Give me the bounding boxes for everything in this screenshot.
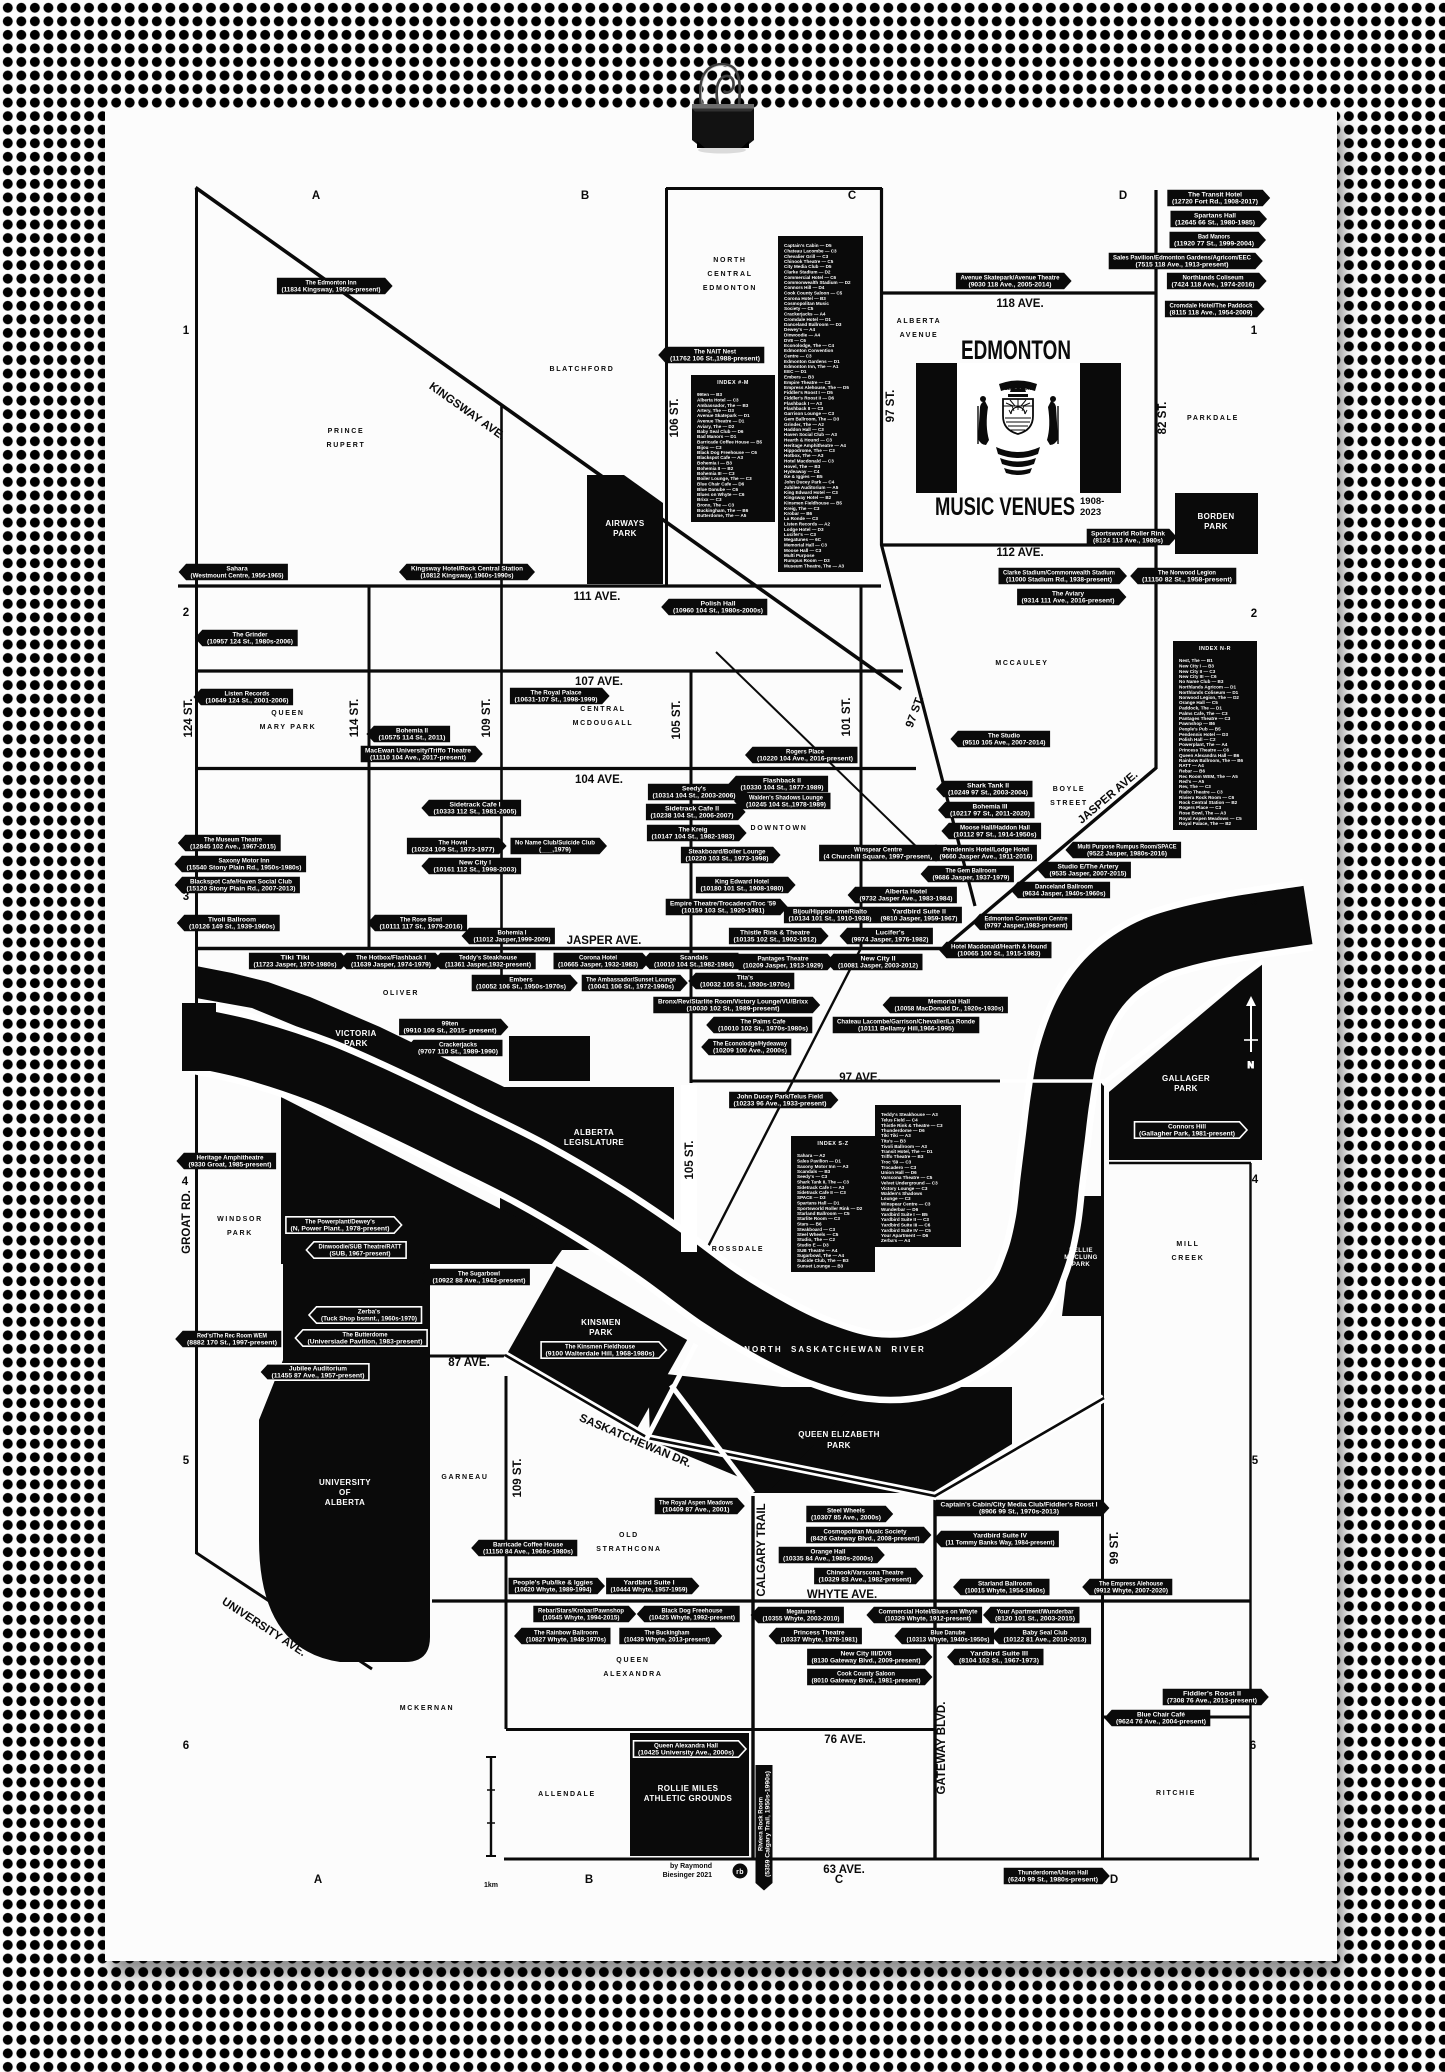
svg-text:A: A [314,1874,322,1886]
svg-text:The Ambassador/Sunset Lounge: The Ambassador/Sunset Lounge [586,977,676,984]
svg-text:2: 2 [1251,608,1257,620]
svg-text:The Buckingham: The Buckingham [645,1630,690,1637]
svg-text:(9974 Jasper, 1976-1982): (9974 Jasper, 1976-1982) [852,937,929,944]
svg-text:OLD: OLD [619,1532,639,1539]
svg-text:The Museum Theatre: The Museum Theatre [204,837,262,844]
svg-text:Studio, The — C2: Studio, The — C2 [797,1237,835,1242]
svg-text:101 ST.: 101 ST. [841,698,853,737]
svg-text:GARNEAU: GARNEAU [441,1474,488,1481]
svg-text:(Tuck Shop bsmnt., 1960s-1970): (Tuck Shop bsmnt., 1960s-1970) [321,1316,417,1323]
svg-text:Kinsmen Fieldhouse — B5: Kinsmen Fieldhouse — B5 [784,501,842,506]
svg-text:PARKDALE: PARKDALE [1187,415,1239,422]
svg-text:Brixx — C3: Brixx — C3 [697,497,722,502]
svg-text:(10439 Whyte, 2013-present): (10439 Whyte, 2013-present) [624,1637,710,1644]
svg-text:Seedy's — C3: Seedy's — C3 [797,1174,828,1179]
svg-text:Memorial Hall — C3: Memorial Hall — C3 [784,543,827,548]
svg-text:Society — C5: Society — C5 [784,306,814,311]
svg-text:105 ST.: 105 ST. [684,1141,696,1180]
svg-text:CREEK: CREEK [1171,1255,1204,1262]
svg-text:Nest, The — B1: Nest, The — B1 [1179,658,1213,663]
svg-text:(11000 Stadium Rd., 1938-prese: (11000 Stadium Rd., 1938-present) [1006,577,1112,584]
svg-text:JASPER AVE.: JASPER AVE. [1076,769,1141,827]
svg-text:NORTH: NORTH [713,257,746,264]
svg-text:(15120 Stony Plain Rd., 2007-2: (15120 Stony Plain Rd., 2007-2013) [187,886,296,893]
svg-text:Garrison Lounge — C3: Garrison Lounge — C3 [784,411,834,416]
svg-text:Scandals: Scandals [680,955,709,962]
svg-text:(11150 84 Ave., 1960s-1980s): (11150 84 Ave., 1960s-1980s) [483,1549,573,1556]
svg-text:INDEX #-M: INDEX #-M [717,380,749,386]
svg-text:Hotbox, The — A3: Hotbox, The — A3 [784,453,824,458]
svg-text:(7515 118 Ave., 1913-present): (7515 118 Ave., 1913-present) [1136,262,1229,269]
svg-text:2023: 2023 [1080,507,1101,518]
svg-text:(8010 Gateway Blvd., 1981-pres: (8010 Gateway Blvd., 1981-present) [812,1678,921,1685]
svg-text:Edmonton Convention Centre: Edmonton Convention Centre [985,916,1068,923]
svg-text:Commercial Hotel/Blues on Whyt: Commercial Hotel/Blues on Whyte [879,1609,978,1616]
svg-text:The Edmonton Inn: The Edmonton Inn [306,280,357,287]
svg-text:Captain's Cabin/City Media Clu: Captain's Cabin/City Media Club/Fiddler'… [941,1502,1098,1509]
svg-text:Dinwoodie/SUB Theatre/RATT: Dinwoodie/SUB Theatre/RATT [319,1244,402,1251]
svg-text:Paddock, The — D1: Paddock, The — D1 [1179,706,1222,711]
svg-text:Butterdome, The — A5: Butterdome, The — A5 [697,513,747,518]
svg-text:Centre — C3: Centre — C3 [784,354,812,359]
svg-text:New City III/DV8: New City III/DV8 [841,1651,892,1658]
svg-text:No Name Club/Suicide Club: No Name Club/Suicide Club [515,840,595,847]
svg-text:Kingsway Hotel/Rock Central St: Kingsway Hotel/Rock Central Station [411,566,523,573]
svg-text:Sidetrack Cafe II: Sidetrack Cafe II [665,806,719,813]
svg-text:Cook County Saloon — C5: Cook County Saloon — C5 [784,291,843,296]
svg-text:City Media Club — D5: City Media Club — D5 [784,264,832,269]
svg-text:(9660 Jasper Ave., 1911-2016): (9660 Jasper Ave., 1911-2016) [940,854,1033,861]
svg-text:4: 4 [1252,1174,1259,1186]
svg-text:KINGSWAY AVE.: KINGSWAY AVE. [427,381,507,443]
svg-text:The Royal Aspen Meadows: The Royal Aspen Meadows [659,1500,733,1507]
svg-text:(10575 114 St., 2011): (10575 114 St., 2011) [379,735,446,742]
svg-text:Museum Theatre, The — A3: Museum Theatre, The — A3 [784,564,845,569]
svg-text:Bohemia I — B3: Bohemia I — B3 [697,461,732,466]
svg-text:(10425 Whyte, 1992-present): (10425 Whyte, 1992-present) [649,1615,735,1622]
svg-text:Empire Theatre/Trocadero/Troc: Empire Theatre/Trocadero/Troc '59 [670,901,776,908]
svg-text:EDMONTON: EDMONTON [961,335,1071,365]
svg-text:Orange Hall — C5: Orange Hall — C5 [1179,700,1218,705]
svg-text:Pantages Theatre: Pantages Theatre [758,956,809,963]
svg-text:Spartans Hall — D1: Spartans Hall — D1 [797,1201,840,1206]
svg-text:KINSMEN: KINSMEN [581,1318,621,1327]
svg-text:Embers — B3: Embers — B3 [784,375,814,380]
svg-text:ROSSDALE: ROSSDALE [712,1246,765,1253]
svg-text:RITCHIE: RITCHIE [1156,1790,1196,1797]
svg-text:Connors Hill — D4: Connors Hill — D4 [784,285,825,290]
svg-text:112 AVE.: 112 AVE. [996,547,1043,559]
svg-text:(10313 Whyte, 1940s-1950s): (10313 Whyte, 1940s-1950s) [907,1637,990,1644]
svg-text:(9797 Jasper,1983-present): (9797 Jasper,1983-present) [985,923,1068,930]
svg-text:(10180 101 St., 1908-1980): (10180 101 St., 1908-1980) [701,886,784,893]
svg-text:PARK: PARK [1204,522,1228,531]
svg-text:INDEX S-Z: INDEX S-Z [817,1141,848,1147]
svg-text:The Econolodge/Hydeaway: The Econolodge/Hydeaway [713,1041,787,1048]
svg-text:Chateau Lacombe — C3: Chateau Lacombe — C3 [784,249,837,254]
svg-text:(12645 66 St., 1980-1985): (12645 66 St., 1980-1985) [1175,220,1255,227]
svg-text:(10444 Whyte, 1957-1959): (10444 Whyte, 1957-1959) [611,1587,688,1594]
svg-text:ALEXANDRA: ALEXANDRA [603,1671,662,1678]
svg-text:Flashback II: Flashback II [763,778,801,785]
svg-text:Megatunes — 6C: Megatunes — 6C [784,537,822,542]
svg-text:118 AVE.: 118 AVE. [996,298,1043,310]
svg-text:Memorial Hall: Memorial Hall [928,999,970,1006]
svg-text:111 AVE.: 111 AVE. [574,591,621,603]
svg-text:NORTH SASKATCHEWAN RIVER: NORTH SASKATCHEWAN RIVER [744,1345,926,1354]
svg-text:Red's/The Rec Room WEM: Red's/The Rec Room WEM [197,1333,267,1340]
svg-text:Lounge — C3: Lounge — C3 [881,1196,911,1201]
svg-text:Bronx/Rev/Starlite Room/Victor: Bronx/Rev/Starlite Room/Victory Lounge/V… [658,999,808,1006]
svg-text:(10058 MacDonald Dr., 1920s-19: (10058 MacDonald Dr., 1920s-1930s) [895,1006,1004,1013]
svg-text:(10015 Whyte, 1954-1960s): (10015 Whyte, 1954-1960s) [965,1588,1045,1595]
svg-text:AVENUE: AVENUE [900,332,939,339]
svg-text:Corona Hotel: Corona Hotel [579,955,617,962]
svg-text:Lucifer's: Lucifer's [876,930,905,937]
svg-text:(10827 Whyte, 1948-1970s): (10827 Whyte, 1948-1970s) [526,1637,606,1644]
svg-text:(10812 Kingsway, 1960s-1990s): (10812 Kingsway, 1960s-1990s) [421,573,514,580]
svg-text:Northlands Agricom — D1: Northlands Agricom — D1 [1179,685,1236,690]
svg-text:EDMONTON: EDMONTON [703,285,757,292]
svg-text:The Butterdome: The Butterdome [343,1332,388,1339]
svg-text:People's Pub/Ike & Iggies: People's Pub/Ike & Iggies [513,1580,593,1587]
svg-text:Winspear Centre: Winspear Centre [854,847,902,854]
svg-text:QUEEN ELIZABETH: QUEEN ELIZABETH [798,1430,880,1439]
svg-text:Studio E/The Artery: Studio E/The Artery [1058,864,1119,871]
svg-text:Connors Hill: Connors Hill [1168,1124,1206,1131]
svg-text:(8426 Gateway Blvd., 2008-pres: (8426 Gateway Blvd., 2008-present) [811,1536,920,1543]
svg-text:The Royal Palace: The Royal Palace [531,690,582,697]
svg-text:The Hovel: The Hovel [439,840,468,847]
svg-text:Yardbird Suite IV: Yardbird Suite IV [973,1533,1028,1540]
svg-text:Rogers Place: Rogers Place [786,749,824,756]
svg-text:Heritage Amphitheatre: Heritage Amphitheatre [197,1155,264,1162]
svg-text:Barricade Coffee House — B5: Barricade Coffee House — B5 [697,440,763,445]
svg-text:(10238 104 St., 2006-2007): (10238 104 St., 2006-2007) [651,813,734,820]
svg-text:QUEEN: QUEEN [616,1657,649,1664]
svg-text:(10409 87 Ave., 2001): (10409 87 Ave., 2001) [663,1507,730,1514]
svg-text:(8906 99 St., 1970s-2013): (8906 99 St., 1970s-2013) [979,1509,1059,1516]
svg-text:ROLLIE MILES: ROLLIE MILES [658,1784,719,1793]
svg-text:B: B [581,190,589,202]
svg-text:Moose Hall/Haddon Hall: Moose Hall/Haddon Hall [960,825,1030,832]
svg-text:The Grinder: The Grinder [233,632,268,639]
svg-text:Powerplant, The — A4: Powerplant, The — A4 [1179,742,1228,747]
svg-text:Sales Pavilion/Edmonton Garden: Sales Pavilion/Edmonton Gardens/Agricom/… [1113,255,1251,262]
svg-text:PARK: PARK [344,1039,368,1048]
svg-text:97 AVE.: 97 AVE. [839,1072,881,1084]
svg-text:Shark Tank II: Shark Tank II [967,783,1009,790]
svg-text:Barricade Coffee House: Barricade Coffee House [493,1542,563,1549]
svg-text:King Edward Hotel: King Edward Hotel [715,879,769,886]
svg-text:CALGARY TRAIL: CALGARY TRAIL [756,1503,768,1596]
svg-text:Chinook/Varscona Theatre: Chinook/Varscona Theatre [827,1570,904,1577]
svg-text:(9100 Walterdale Hill, 1968-19: (9100 Walterdale Hill, 1968-1980s) [546,1351,655,1358]
svg-text:107 AVE.: 107 AVE. [575,676,623,688]
svg-text:Blue Chair Cafe — D6: Blue Chair Cafe — D6 [697,482,745,487]
svg-text:(10209 Jasper, 1913-1929): (10209 Jasper, 1913-1929) [743,963,823,970]
svg-text:QUEEN: QUEEN [271,710,304,717]
svg-text:New City II: New City II [861,956,896,963]
svg-text:The Powerplant/Dewey's: The Powerplant/Dewey's [305,1219,375,1226]
svg-text:(10030 102 St., 1989-present): (10030 102 St., 1989-present) [687,1006,780,1013]
svg-text:(5359 Calgary Trail, 1950s-199: (5359 Calgary Trail, 1950s-1990s) [765,1771,772,1877]
svg-text:C: C [848,190,856,202]
svg-text:EEC — D1: EEC — D1 [784,369,807,374]
svg-text:Tita's: Tita's [737,975,754,982]
svg-text:Teddy's Steakhouse: Teddy's Steakhouse [459,955,517,962]
svg-text:by Raymond: by Raymond [670,1863,712,1870]
svg-text:(10111 Bellamy Hill,1966-1995): (10111 Bellamy Hill,1966-1995) [858,1026,954,1033]
svg-text:MCCLUNG: MCCLUNG [1064,1255,1097,1261]
svg-text:Danceland Ballroom: Danceland Ballroom [1035,884,1093,891]
svg-text:(10220 104 Ave., 2016-present): (10220 104 Ave., 2016-present) [757,756,853,763]
svg-text:Multi Purpose Rumpus Room/SPAC: Multi Purpose Rumpus Room/SPACE [1078,844,1178,851]
svg-text:(10010 102 St., 1970s-1980s): (10010 102 St., 1970s-1980s) [718,1026,808,1033]
svg-text:Sahara — A2: Sahara — A2 [797,1153,826,1158]
svg-text:Bronx, The — C3: Bronx, The — C3 [697,503,734,508]
svg-text:(10217 97 St., 2011-2020): (10217 97 St., 2011-2020) [950,811,1030,818]
svg-text:(10337 Whyte, 1978-1981): (10337 Whyte, 1978-1981) [781,1637,858,1644]
svg-text:Hotel Macdonald — C3: Hotel Macdonald — C3 [784,459,834,464]
svg-text:BORDEN: BORDEN [1197,512,1234,521]
svg-text:(10333 112 St., 1981-2005): (10333 112 St., 1981-2005) [434,809,517,816]
svg-text:The Sugarbowl: The Sugarbowl [458,1271,500,1278]
svg-text:Haven Social Club — A3: Haven Social Club — A3 [784,432,837,437]
svg-text:Pawnshop — B6: Pawnshop — B6 [1179,721,1215,726]
svg-text:Steel Wheels: Steel Wheels [827,1508,865,1515]
svg-text:BOYLE: BOYLE [1053,786,1086,793]
svg-text:(Gallagher Park, 1981-present): (Gallagher Park, 1981-present) [1139,1131,1235,1138]
svg-text:109 ST.: 109 ST. [481,699,493,738]
svg-text:Alberta Hotel: Alberta Hotel [885,889,927,896]
svg-text:John Ducey Park — C4: John Ducey Park — C4 [784,480,835,485]
svg-text:STREET: STREET [1050,800,1088,807]
svg-text:(11110 104 Ave., 2017-present): (11110 104 Ave., 2017-present) [370,755,466,762]
svg-text:Ike & Iggies — B5: Ike & Iggies — B5 [784,474,823,479]
svg-text:The Empress Alehouse: The Empress Alehouse [1099,1581,1163,1588]
svg-text:(10233 96 Ave., 1933-present): (10233 96 Ave., 1933-present) [734,1101,827,1108]
svg-text:MUSIC VENUES: MUSIC VENUES [935,493,1075,521]
svg-text:INDEX N-R: INDEX N-R [1199,646,1231,652]
svg-text:Fiddler's Roost II — D6: Fiddler's Roost II — D6 [784,396,835,401]
svg-text:Telus Field — C4: Telus Field — C4 [881,1118,918,1123]
svg-text:105 ST.: 105 ST. [671,701,683,740]
svg-text:(10111 117 St., 1979-2016): (10111 117 St., 1979-2016) [380,924,463,931]
svg-text:(11361 Jasper,1932-present): (11361 Jasper,1932-present) [445,962,531,969]
svg-text:ALLENDALE: ALLENDALE [538,1791,596,1798]
svg-text:Boiler Lounge, The — C3: Boiler Lounge, The — C3 [697,476,752,481]
svg-text:People's Pub — B5: People's Pub — B5 [1179,727,1221,732]
svg-text:Royal Palace, The — B2: Royal Palace, The — B2 [1179,821,1232,826]
svg-text:Sales Pavilion — D1: Sales Pavilion — D1 [797,1159,841,1164]
svg-text:(11762 106 St.,1988-present): (11762 106 St.,1988-present) [670,356,760,363]
svg-text:DOWNTOWN: DOWNTOWN [750,825,807,832]
svg-text:(9510 105 Ave., 2007-2014): (9510 105 Ave., 2007-2014) [963,740,1046,747]
svg-text:MacEwan University/Triffo Thea: MacEwan University/Triffo Theatre [365,748,471,755]
svg-text:Pendennis Hotel/Lodge Hotel: Pendennis Hotel/Lodge Hotel [943,847,1029,854]
svg-text:WINDSOR: WINDSOR [217,1216,263,1223]
svg-text:MCDOUGALL: MCDOUGALL [573,720,634,727]
svg-text:63 AVE.: 63 AVE. [823,1864,865,1876]
svg-text:Tita's — B3: Tita's — B3 [881,1139,906,1144]
svg-text:Sahara: Sahara [226,566,248,573]
svg-text:(11 Tommy Banks Way, 1984-pres: (11 Tommy Banks Way, 1984-present) [946,1540,1055,1547]
svg-text:6: 6 [1250,1740,1256,1752]
svg-text:Chateau Lacombe/Garrison/Cheva: Chateau Lacombe/Garrison/Chevalier/La Ro… [837,1019,975,1026]
svg-text:Starlite Room — C3: Starlite Room — C3 [797,1216,840,1221]
svg-text:Blackspot Cafe/Haven Social Cl: Blackspot Cafe/Haven Social Club [190,879,292,886]
svg-text:Rev, The — C3: Rev, The — C3 [1179,784,1211,789]
svg-text:Crackerjacks — A4: Crackerjacks — A4 [784,312,826,317]
svg-text:(10112 97 St., 1914-1950s): (10112 97 St., 1914-1950s) [954,832,1037,839]
svg-text:Riviera Rock Room: Riviera Rock Room [758,1797,765,1851]
svg-text:114 ST.: 114 ST. [349,699,361,737]
svg-text:(7424 118 Ave., 1974-2016): (7424 118 Ave., 1974-2016) [1172,282,1255,289]
svg-text:(10159 103 St., 1920-1981): (10159 103 St., 1920-1981) [682,908,765,915]
svg-text:Blue Danube: Blue Danube [931,1630,966,1637]
svg-text:The Palms Cafe: The Palms Cafe [741,1019,786,1026]
svg-text:(10209 100 Ave., 2000s): (10209 100 Ave., 2000s) [713,1048,787,1055]
svg-text:PRINCE: PRINCE [328,428,365,435]
svg-text:Saxony Motor Inn: Saxony Motor Inn [219,858,270,865]
svg-text:(10010 104 St.,1982-1984): (10010 104 St.,1982-1984) [654,962,734,969]
svg-text:(10335 84 Ave., 1980s-2000s): (10335 84 Ave., 1980s-2000s) [783,1556,873,1563]
svg-text:Rose Bowl, The — A3: Rose Bowl, The — A3 [1179,811,1226,816]
svg-text:Bohemia II: Bohemia II [396,728,428,735]
svg-text:Rialto Theatre — C3: Rialto Theatre — C3 [1179,790,1223,795]
svg-text:(9330 Groat, 1985-present): (9330 Groat, 1985-present) [189,1162,272,1169]
svg-text:(10249 97 St., 2003-2004): (10249 97 St., 2003-2004) [948,790,1028,797]
svg-text:Crackerjacks: Crackerjacks [439,1042,477,1049]
svg-text:The Hotbox/Flashback I: The Hotbox/Flashback I [356,955,426,962]
svg-text:Tiki Tiki — A3: Tiki Tiki — A3 [881,1133,911,1138]
svg-text:(7308 76 Ave., 2013-present): (7308 76 Ave., 2013-present) [1167,1698,1257,1705]
svg-text:CENTRAL: CENTRAL [580,706,625,713]
svg-text:C: C [835,1874,843,1886]
svg-text:The Gem Ballroom: The Gem Ballroom [946,868,997,875]
svg-text:(10330 104 St., 1977-1989): (10330 104 St., 1977-1989) [741,785,824,792]
svg-text:(10665 Jasper, 1932-1983): (10665 Jasper, 1932-1983) [558,962,638,969]
svg-text:(11639 Jasper, 1974-1979): (11639 Jasper, 1974-1979) [351,962,431,969]
svg-text:Thistle Rink & Theatre: Thistle Rink & Theatre [740,930,810,937]
svg-text:Edmonton Convention: Edmonton Convention [784,348,833,353]
svg-text:(10147 104 St., 1982-1983): (10147 104 St., 1982-1983) [652,834,735,841]
svg-text:Triffo Theatre — B3: Triffo Theatre — B3 [881,1154,924,1159]
svg-text:Fiddler's Roost II: Fiddler's Roost II [1183,1691,1241,1698]
svg-text:Baby Seal Club: Baby Seal Club [1023,1630,1068,1637]
svg-text:Gem Ballroom, The — D3: Gem Ballroom, The — D3 [784,417,840,422]
svg-text:(10649 124 St., 2001-2006): (10649 124 St., 2001-2006) [206,698,289,705]
svg-text:Bad Manors: Bad Manors [1198,234,1230,241]
svg-text:3: 3 [1251,896,1257,908]
svg-text:Your Apartment/Wunderbar: Your Apartment/Wunderbar [997,1609,1074,1616]
svg-text:(10329 Whyte, 1912-present): (10329 Whyte, 1912-present) [885,1616,971,1623]
svg-text:(10126 149 St., 1939-1960s): (10126 149 St., 1939-1960s) [189,924,275,931]
svg-text:MARY PARK: MARY PARK [260,724,317,731]
svg-text:New City I: New City I [459,860,491,867]
svg-text:1: 1 [1251,325,1258,337]
svg-text:Rogers Place — C3: Rogers Place — C3 [1179,805,1222,810]
svg-text:(9732 Jasper Ave., 1983-1984): (9732 Jasper Ave., 1983-1984) [860,896,953,903]
svg-text:No Name Club — B3: No Name Club — B3 [1179,679,1224,684]
svg-text:Hotel Macdonald/Hearth & Hound: Hotel Macdonald/Hearth & Hound [951,944,1047,951]
svg-text:(10425 University Ave., 2000s): (10425 University Ave., 2000s) [638,1750,734,1757]
svg-text:Rumpus Room — D3: Rumpus Room — D3 [784,558,830,563]
svg-text:106 ST.: 106 ST. [669,399,681,438]
svg-text:(4 Churchill Square, 1997-pres: (4 Churchill Square, 1997-present) [824,854,933,861]
svg-text:Yardbird Suite II — C3: Yardbird Suite II — C3 [881,1217,929,1222]
svg-text:(Universiade Pavilion, 1983-pr: (Universiade Pavilion, 1983-present) [308,1339,423,1346]
svg-text:Yardbird Suite III: Yardbird Suite III [970,1651,1028,1658]
svg-text:OLIVER: OLIVER [383,990,419,997]
svg-text:(9314 111 Ave., 2016-present): (9314 111 Ave., 2016-present) [1022,598,1115,605]
svg-text:A: A [312,190,320,202]
svg-text:(9522 Jasper, 1980s-2016): (9522 Jasper, 1980s-2016) [1087,851,1167,858]
svg-text:Princess Theatre: Princess Theatre [794,1630,845,1637]
svg-text:Clarke Stadium/Commonwealth St: Clarke Stadium/Commonwealth Stadium [1003,570,1115,577]
svg-text:The Transit Hotel: The Transit Hotel [1188,192,1242,199]
svg-text:(10960 104 St., 1980s-2000s): (10960 104 St., 1980s-2000s) [673,608,763,615]
svg-text:(___,1979): (___,1979) [539,847,571,854]
svg-text:Black Dog Freehouse: Black Dog Freehouse [662,1608,723,1615]
svg-text:Embers: Embers [509,977,533,984]
svg-text:Troc '59 — C3: Troc '59 — C3 [881,1160,912,1165]
svg-text:(10032 105 St., 1930s-1970s): (10032 105 St., 1930s-1970s) [700,982,790,989]
svg-text:UNIVERSITY: UNIVERSITY [319,1478,371,1487]
svg-text:MCKERNAN: MCKERNAN [400,1705,454,1712]
svg-text:MCCAULEY: MCCAULEY [995,660,1048,667]
svg-text:(9707 110 St., 1989-1990): (9707 110 St., 1989-1990) [418,1049,498,1056]
svg-text:ALBERTA: ALBERTA [574,1128,614,1137]
svg-text:Shark Tank II, The — C3: Shark Tank II, The — C3 [797,1180,849,1185]
svg-text:Northlands Coliseum: Northlands Coliseum [1183,275,1244,282]
svg-text:The Studio: The Studio [988,733,1020,740]
svg-text:Studio E — D3: Studio E — D3 [797,1243,829,1248]
svg-text:Bad Manors — D1: Bad Manors — D1 [697,434,737,439]
svg-text:(8882 170 St., 1997-present): (8882 170 St., 1997-present) [187,1340,277,1347]
svg-text:2: 2 [183,607,189,619]
svg-text:5: 5 [183,1455,190,1467]
svg-text:(6240 99 St., 1980s-present): (6240 99 St., 1980s-present) [1008,1877,1098,1884]
svg-text:The Kinsmen Fieldhouse: The Kinsmen Fieldhouse [565,1344,635,1351]
svg-text:(8130 Gateway Blvd., 2009-pres: (8130 Gateway Blvd., 2009-present) [812,1658,921,1665]
svg-text:99ten — B3: 99ten — B3 [697,392,722,397]
svg-text:CENTRAL: CENTRAL [707,271,752,278]
svg-text:(11723 Jasper, 1970-1980s): (11723 Jasper, 1970-1980s) [254,962,337,969]
svg-text:Cosmopolitan Music Society: Cosmopolitan Music Society [824,1529,907,1536]
svg-text:PARK: PARK [613,529,637,538]
svg-text:NELLIE: NELLIE [1069,1248,1093,1254]
svg-text:(11012 Jasper,1999-2009): (11012 Jasper,1999-2009) [474,937,551,944]
svg-text:(10065 100 St., 1915-1983): (10065 100 St., 1915-1983) [958,951,1041,958]
svg-text:(9535 Jasper, 2007-2015): (9535 Jasper, 2007-2015) [1050,871,1127,878]
svg-text:(N, Power Plant., 1978-present: (N, Power Plant., 1978-present) [291,1226,390,1233]
svg-text:76 AVE.: 76 AVE. [824,1734,866,1746]
svg-text:109 ST.: 109 ST. [512,1459,524,1498]
svg-text:D: D [1119,190,1127,202]
svg-text:La Ronde — C3: La Ronde — C3 [784,516,818,521]
svg-text:The Rose Bowl: The Rose Bowl [400,917,442,924]
svg-text:Polish Hall: Polish Hall [701,601,736,608]
svg-text:PARK: PARK [827,1441,851,1450]
svg-text:Sidetrack Cafe I: Sidetrack Cafe I [450,802,501,809]
svg-text:John Ducey Park/Telus Field: John Ducey Park/Telus Field [737,1094,823,1101]
svg-text:Dewey's — A4: Dewey's — A4 [784,327,815,332]
svg-text:(10620 Whyte, 1989-1994): (10620 Whyte, 1989-1994) [515,1587,592,1594]
svg-text:JASPER AVE.: JASPER AVE. [567,935,642,947]
svg-text:The Kreig: The Kreig [679,827,708,834]
